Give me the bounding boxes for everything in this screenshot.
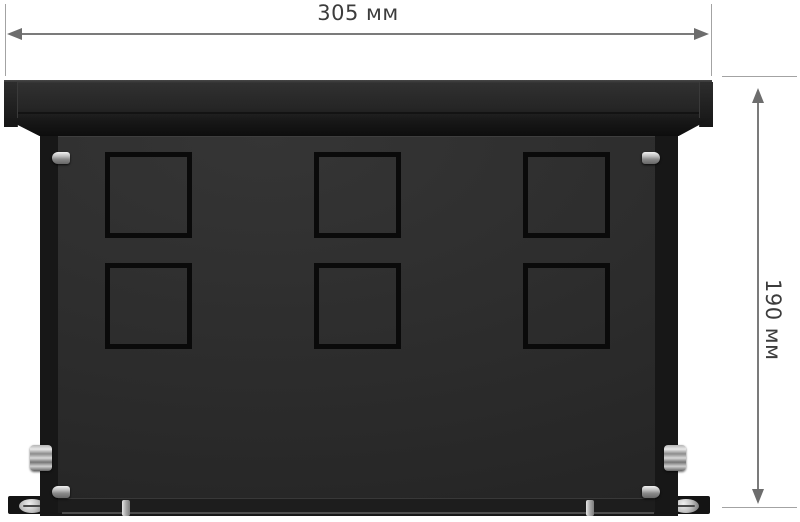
hinge-pin-left (122, 500, 130, 516)
height-dimension-line (757, 102, 759, 490)
panel-screw-bottom-left (52, 486, 70, 498)
base-strip (58, 498, 655, 513)
panel-screw-top-right (642, 152, 660, 164)
knockout-corner (314, 263, 359, 308)
knockout-corner (565, 263, 610, 308)
knockout-cutout (314, 152, 401, 238)
knockout-corner (105, 263, 150, 308)
knockout-corner (565, 152, 610, 197)
knockout-corner (523, 152, 568, 197)
enclosure-lid (4, 80, 712, 118)
height-arrowhead-bottom-icon (752, 489, 764, 504)
width-extension-line-right (711, 4, 712, 76)
knockout-corner (565, 304, 610, 349)
hinge-pin-right (586, 500, 594, 516)
width-dimension-label: 305 мм (258, 1, 458, 25)
knockout-corner (105, 304, 150, 349)
knockout-corner (314, 193, 359, 238)
width-dimension-line (18, 33, 699, 35)
knockout-cutout (314, 263, 401, 349)
knockout-corner (147, 193, 192, 238)
knockout-corner (356, 152, 401, 197)
panel-screw-bottom-right (642, 486, 660, 498)
knockout-cutout (105, 263, 192, 349)
cable-gland-right (664, 445, 686, 471)
width-arrowhead-left-icon (7, 28, 22, 40)
knockout-corner (147, 304, 192, 349)
knockout-cutout (523, 263, 610, 349)
knockout-corner (105, 193, 150, 238)
knockout-corner (356, 193, 401, 238)
cable-gland-left (30, 445, 52, 471)
lid-underside (4, 118, 712, 136)
knockout-corner (356, 263, 401, 308)
knockout-corner (523, 193, 568, 238)
height-extension-line-top (722, 76, 797, 77)
height-arrowhead-top-icon (752, 88, 764, 103)
knockout-corner (147, 152, 192, 197)
knockout-corner (356, 304, 401, 349)
height-extension-line-bottom (722, 507, 797, 508)
product-diagram: 305 мм 190 мм (0, 0, 800, 522)
width-arrowhead-right-icon (694, 28, 709, 40)
knockout-corner (565, 193, 610, 238)
panel-screw-top-left (52, 152, 70, 164)
knockout-corner (314, 304, 359, 349)
knockout-cutout (523, 152, 610, 238)
knockout-corner (105, 152, 150, 197)
knockout-corner (314, 152, 359, 197)
knockout-cutout (105, 152, 192, 238)
knockout-corner (523, 263, 568, 308)
knockout-corner (147, 263, 192, 308)
knockout-corner (523, 304, 568, 349)
height-dimension-label: 190 мм (761, 232, 785, 408)
width-extension-line-left (5, 4, 6, 76)
bottom-edge-highlight (62, 512, 654, 514)
